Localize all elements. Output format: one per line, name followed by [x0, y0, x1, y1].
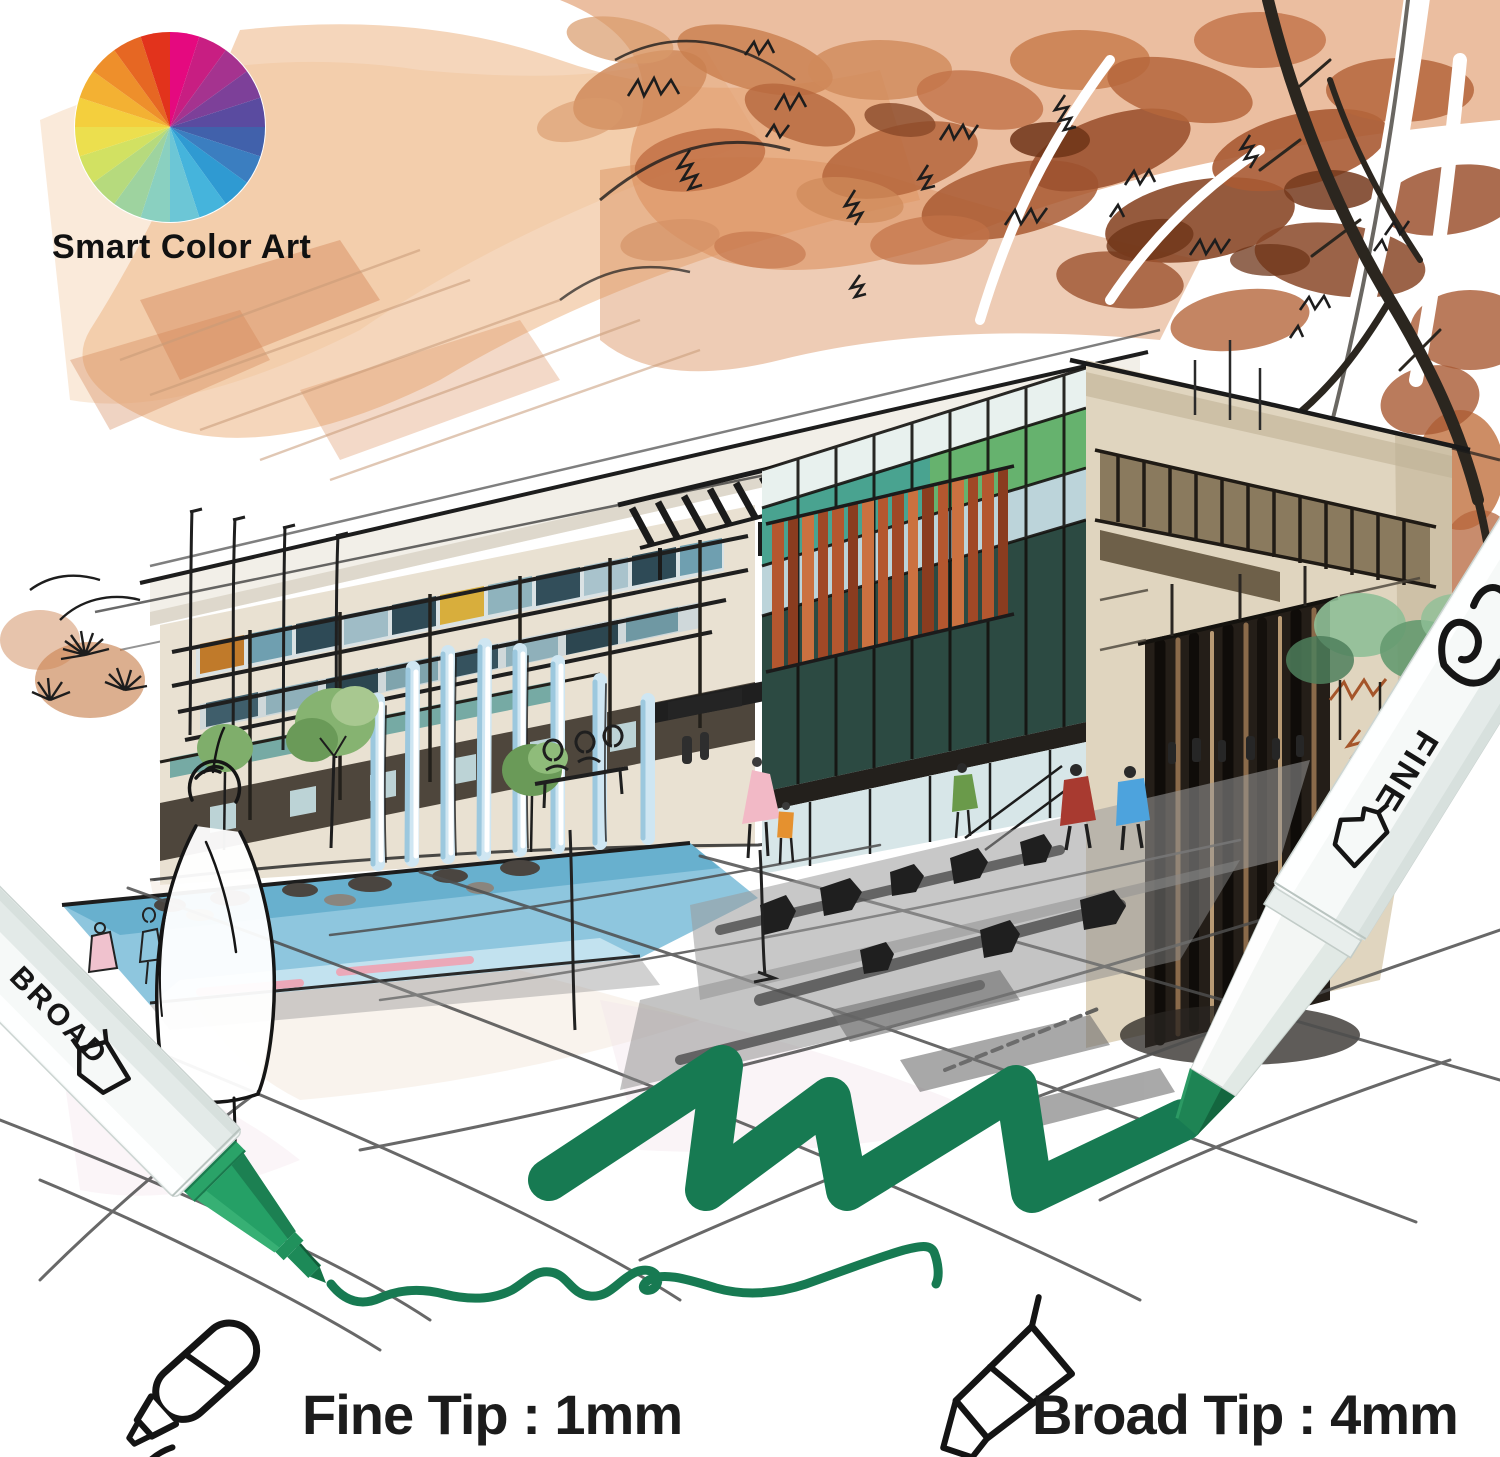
color-wheel-segments [75, 32, 265, 222]
color-wheel [74, 31, 266, 223]
fine-tip-spec: Fine Tip : 1mm [102, 1312, 682, 1457]
fine-tip-icon [102, 1312, 272, 1457]
left-bushes [0, 576, 147, 718]
broad-tip-text: Broad Tip : 4mm [1032, 1383, 1458, 1446]
broad-tip-spec: Broad Tip : 4mm [899, 1297, 1458, 1457]
fine-wavy-stroke [331, 1247, 938, 1302]
brand-name: Smart Color Art [52, 228, 311, 266]
product-image: BROAD FINE Smart Color Art [0, 0, 1500, 1457]
fine-tip-text: Fine Tip : 1mm [302, 1383, 682, 1446]
tip-specs: Fine Tip : 1mm Broad Tip : 4mm [102, 1297, 1458, 1457]
artwork-canvas: BROAD FINE Smart Color Art [0, 0, 1500, 1457]
